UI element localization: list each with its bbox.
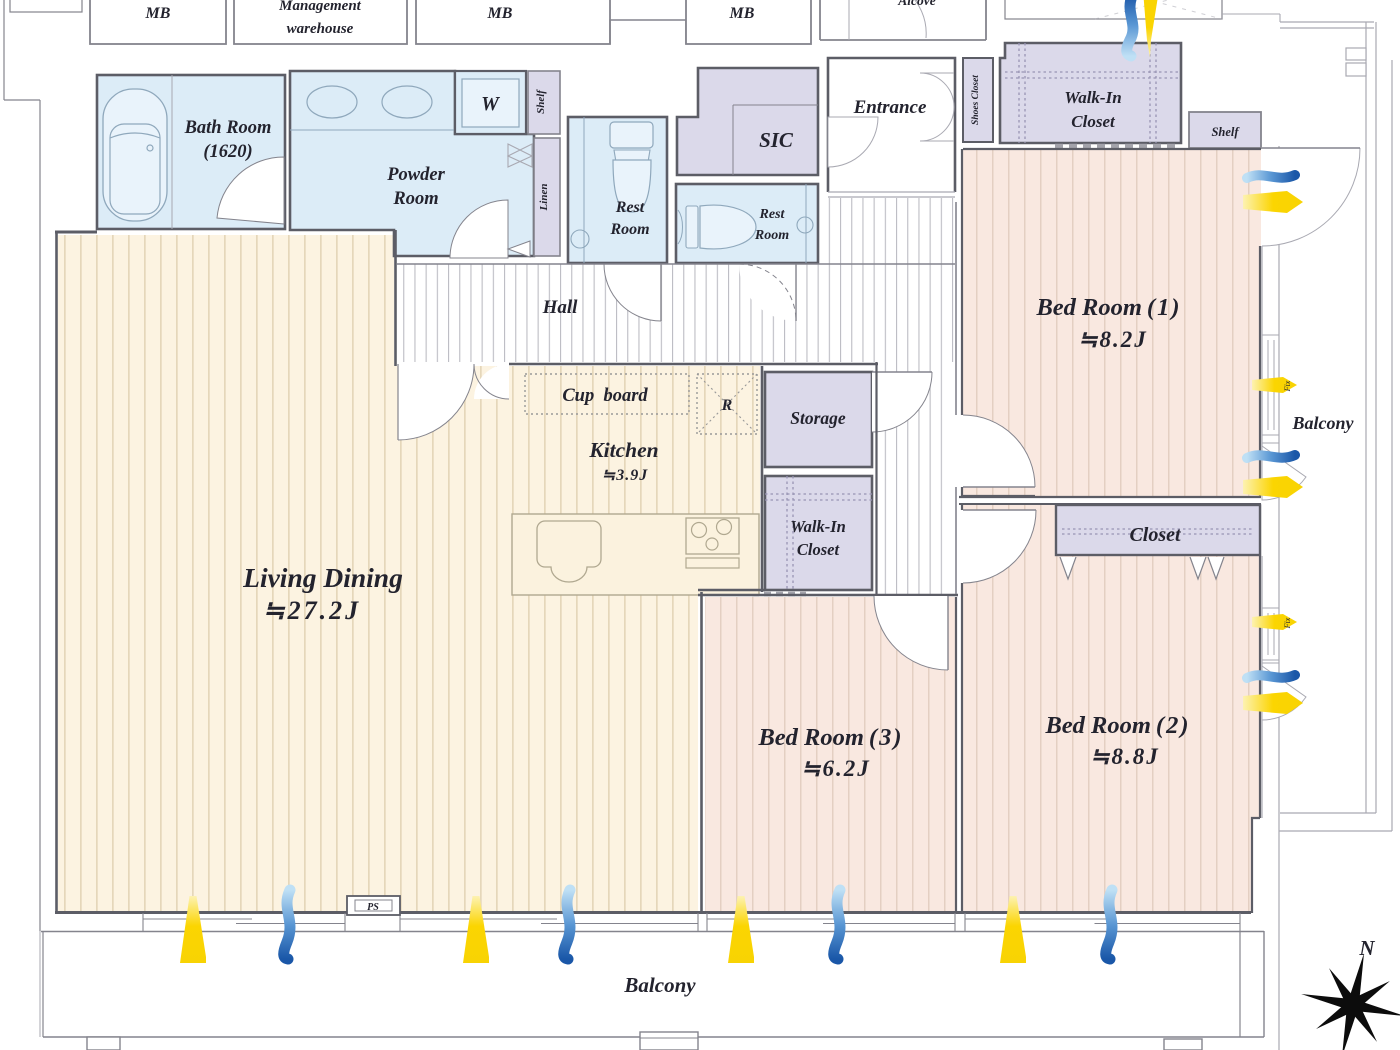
svg-text:Storage: Storage — [790, 408, 846, 428]
svg-text:Room: Room — [392, 189, 438, 209]
svg-text:Fix: Fix — [1283, 380, 1292, 392]
svg-text:Rest: Rest — [615, 199, 645, 216]
svg-text:Shelf: Shelf — [1211, 125, 1240, 139]
svg-text:Rest: Rest — [759, 207, 786, 222]
svg-text:Balcony: Balcony — [623, 973, 696, 997]
svg-text:MB: MB — [145, 5, 171, 22]
svg-text:MB: MB — [487, 5, 513, 22]
svg-text:Living Dining: Living Dining — [242, 562, 403, 593]
svg-text:Closet: Closet — [797, 540, 840, 559]
svg-text:W: W — [481, 93, 500, 115]
svg-text:Bath Room: Bath Room — [184, 118, 272, 138]
svg-text:Room: Room — [609, 221, 649, 238]
svg-text:≒27.2J: ≒27.2J — [263, 596, 361, 625]
svg-text:≒8.2J: ≒8.2J — [1078, 327, 1148, 352]
svg-text:Closet: Closet — [1071, 112, 1116, 131]
svg-text:≒8.8J: ≒8.8J — [1090, 744, 1160, 769]
svg-text:≒6.2J: ≒6.2J — [801, 756, 871, 781]
svg-text:Walk-In: Walk-In — [790, 517, 846, 536]
svg-text:Bed Room ( 2 ): Bed Room ( 2 ) — [1044, 712, 1188, 739]
svg-text:warehouse: warehouse — [287, 21, 354, 37]
svg-text:Kitchen: Kitchen — [588, 438, 658, 462]
svg-text:PS: PS — [367, 902, 379, 913]
svg-text:Bed Room ( 1 ): Bed Room ( 1 ) — [1035, 294, 1179, 321]
svg-text:Room: Room — [754, 228, 789, 243]
svg-text:R: R — [721, 397, 733, 414]
svg-text:Management: Management — [278, 0, 362, 14]
svg-text:Hall: Hall — [542, 297, 579, 318]
svg-text:Powder: Powder — [386, 165, 445, 185]
svg-text:N: N — [1358, 936, 1375, 960]
svg-text:Walk-In: Walk-In — [1064, 88, 1121, 107]
svg-text:MB: MB — [729, 5, 755, 22]
svg-text:Balcony: Balcony — [1292, 413, 1355, 433]
svg-text:Shelf: Shelf — [535, 89, 547, 114]
svg-text:Entrance: Entrance — [853, 97, 927, 118]
svg-text:≒3.9J: ≒3.9J — [602, 467, 648, 484]
svg-text:Alcove: Alcove — [897, 0, 935, 8]
svg-text:Cup board: Cup board — [562, 386, 648, 406]
svg-text:Fix: Fix — [1283, 617, 1292, 629]
svg-text:Shoes Closet: Shoes Closet — [971, 75, 981, 125]
svg-text:(1620): (1620) — [203, 142, 252, 162]
svg-text:Bed Room ( 3 ): Bed Room ( 3 ) — [757, 724, 901, 751]
svg-text:Closet: Closet — [1129, 524, 1182, 546]
svg-text:SIC: SIC — [759, 128, 794, 152]
svg-text:Linen: Linen — [538, 184, 550, 212]
